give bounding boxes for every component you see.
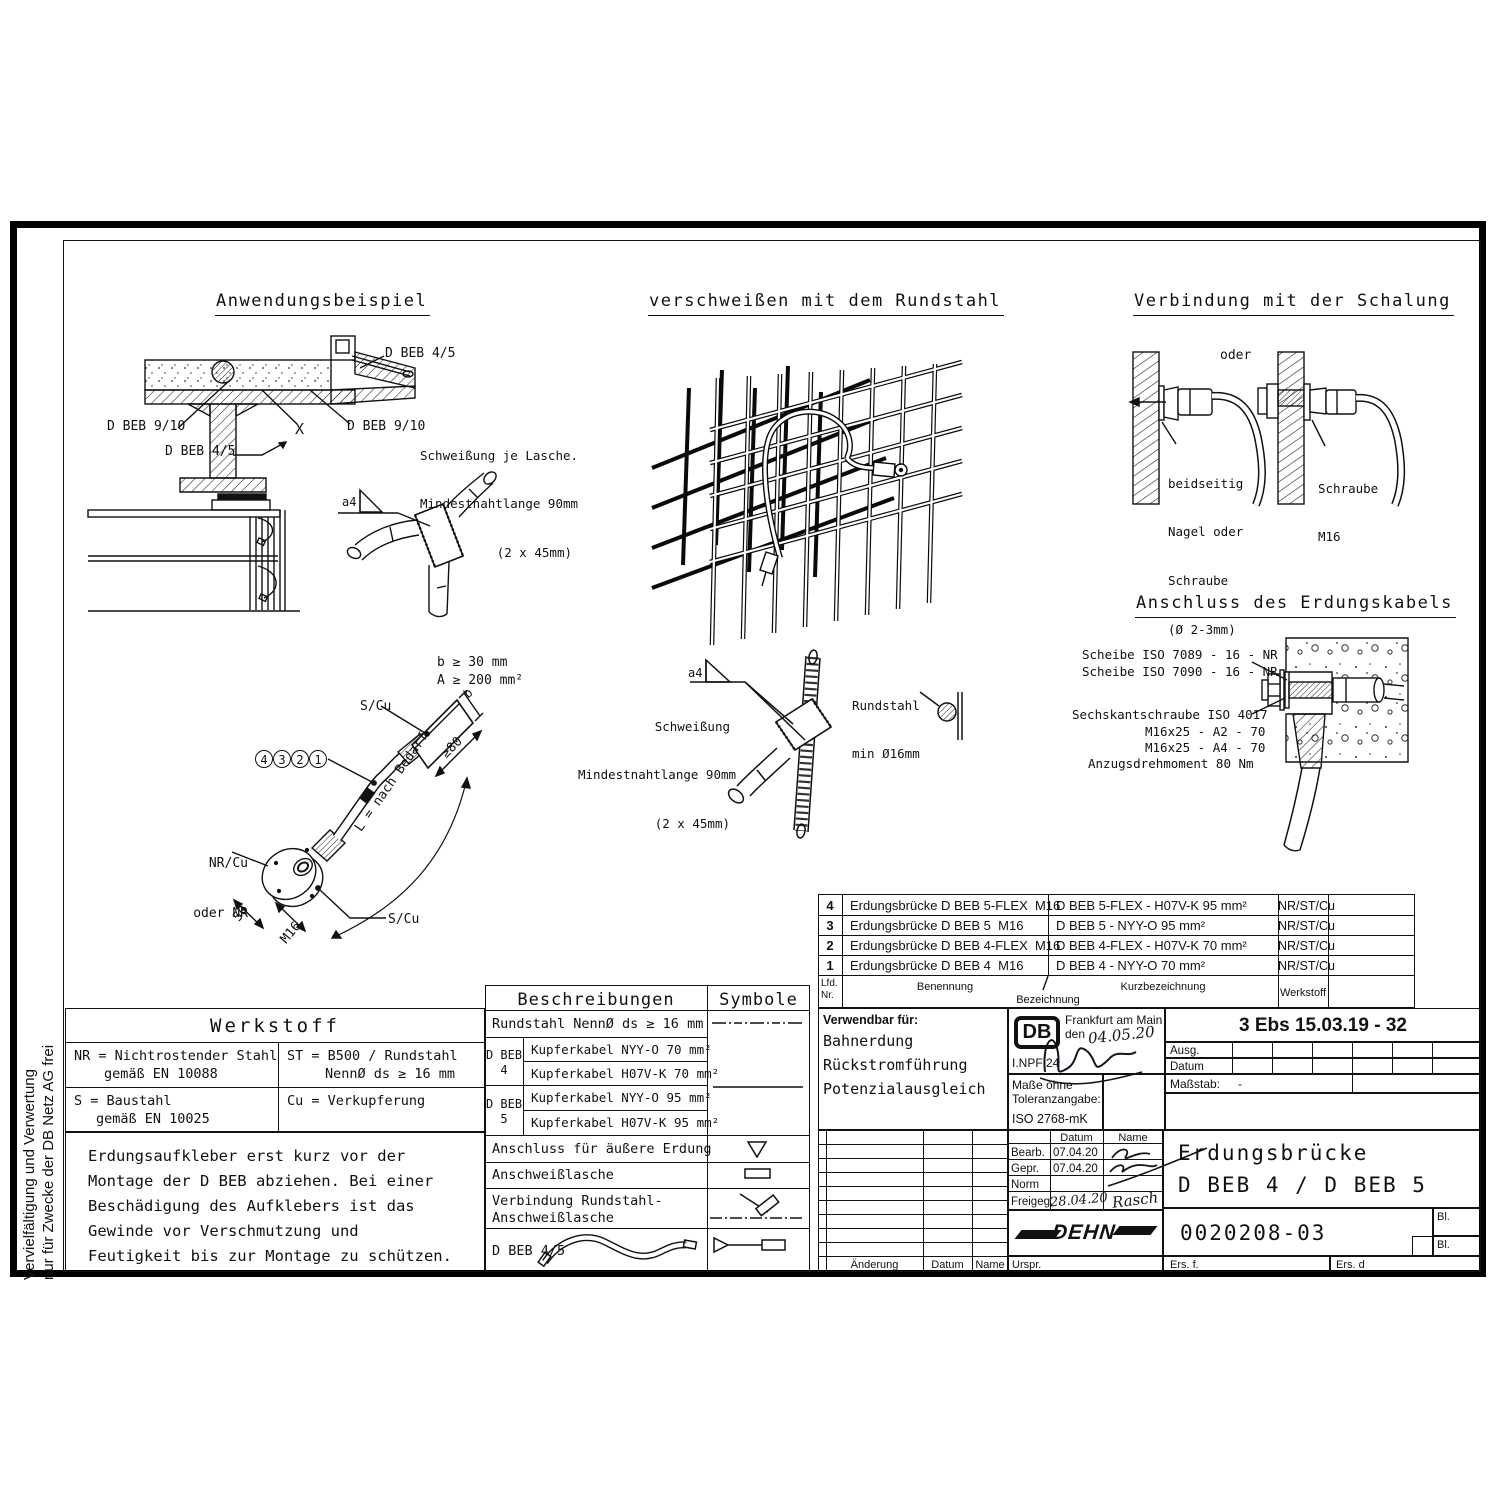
massstab-value: - [1238,1077,1242,1093]
drawing-number: 0020208-03 [1180,1220,1326,1247]
fig4-dim-a: A ≥ 200 mm² [437,673,523,690]
dehn-swoosh-right [1112,1226,1157,1235]
legend-k1: Kupferkabel NYY-O 70 mm² [531,1042,712,1058]
approvals-col-name: Name [1103,1131,1163,1145]
verwendbar-item1: Bahnerdung [823,1032,913,1052]
parts-row-benennung: Erdungsbrücke D BEB 4 M16 [850,958,1023,975]
parts-row-nr: 3 [818,918,842,935]
parts-row-kurz: D BEB 4-FLEX - H07V-K 70 mm² [1056,938,1247,955]
parts-row-nr: 1 [818,958,842,975]
verwendbar-item2: Rückstromführung [823,1056,968,1076]
legend-k3: Kupferkabel NYY-O 95 mm² [531,1090,712,1106]
parts-header-bezeichnung: Bezeichnung [968,993,1128,1007]
bl-label-1: Bl. [1437,1210,1450,1224]
freigeg-label: Freigeg. [1011,1195,1053,1210]
werkstoff-title: Werkstoff [65,1014,485,1039]
dehn-swoosh-left [1014,1230,1061,1239]
legend-g2-nr: 5 [485,1112,523,1128]
fig5-label-a4: a4 [688,666,702,682]
fig2-title: verschweißen mit dem Rundstahl [648,291,1004,316]
legend-k4: Kupferkabel H07V-K 95 mm² [531,1115,719,1131]
werkstoff-s: S = Baustahl [74,1093,172,1111]
fig1-label-dbeb910-left: D BEB 9/10 [107,419,185,436]
fig4-callout-3: 3 [273,750,291,768]
dehn-wordmark: DEHN [1051,1220,1117,1246]
fig6-label-m1: M16x25 - A2 - 70 [1145,724,1265,740]
parts-row-kurz: D BEB 5-FLEX - H07V-K 95 mm² [1056,898,1247,915]
fig4-callout-4: 4 [255,750,273,768]
fig6-label-schraube: Sechskantschraube ISO 4017 [1072,707,1268,723]
parts-row-werkstoff: NR/ST/Cu [1278,918,1328,934]
ausg-label: Ausg. [1170,1044,1199,1059]
gepr-date: 07.04.20 [1053,1162,1098,1177]
legend-symbole: Symbole [707,989,810,1011]
fig3-label-right: Schraube M16 [1318,448,1378,578]
norm-label: Norm [1011,1178,1039,1193]
empty-strip [1165,1093,1481,1130]
datum-label: Datum [1170,1060,1204,1075]
parts-row-kurz: D BEB 5 - NYY-O 95 mm² [1056,918,1205,935]
rev-aenderung: Änderung [826,1258,923,1272]
verwendbar-label: Verwendbar für: [823,1012,918,1028]
gepr-label: Gepr. [1011,1162,1039,1177]
margin-note-line2: nur für Zwecke der DB Netz AG frei [39,968,58,1280]
fig4-label-nrcu: NR/Cu oder NR [188,822,248,957]
rev-datum: Datum [923,1258,972,1272]
db-logo: DB [1014,1016,1060,1049]
legend-g1: D BEB [485,1048,523,1064]
werkstoff-st2: NennØ ds ≥ 16 mm [325,1066,455,1084]
legend-r6: D BEB 4/5 [492,1243,565,1261]
fig1-weld-note: Schweißung je Lasche. Mindestnahtlange 9… [420,415,572,594]
fig4-label-scu-top: S/Cu [360,699,391,716]
parts-row-werkstoff: NR/ST/Cu [1278,958,1328,974]
parts-row-nr: 4 [818,898,842,915]
parts-row-werkstoff: NR/ST/Cu [1278,898,1328,914]
werkstoff-cu: Cu = Verkupferung [287,1093,425,1111]
toleranz-l3: ISO 2768-mK [1012,1111,1088,1127]
bl-label-2: Bl. [1437,1238,1450,1252]
datum-row [1165,1058,1481,1074]
fig5-weld-note: Schweißung Mindestnahtlange 90mm (2 x 45… [578,686,730,865]
werkstoff-nr2: gemäß EN 10088 [104,1066,218,1084]
legend-r5b: Anschweißlasche [492,1210,614,1228]
ersd-label: Ers. d [1336,1258,1365,1272]
fig1-label-dbeb910-right: D BEB 9/10 [347,419,425,436]
toleranz-empty-box [1103,1074,1165,1130]
toleranz-l2: Toleranzangabe: [1012,1092,1101,1108]
fig6-label-m2: M16x25 - A4 - 70 [1145,740,1265,756]
legend-g1-nr: 4 [485,1063,523,1079]
fig1-label-dbeb45-lower: D BEB 4/5 [165,444,235,461]
werkstoff-note: Erdungsaufkleber erst kurz vor der Monta… [88,1144,468,1269]
parts-row-kurz: D BEB 4 - NYY-O 70 mm² [1056,958,1205,975]
legend-r1: Rundstahl NennØ ds ≥ 16 mm [492,1016,703,1034]
parts-header-kurz: Kurzbezeichnung [1048,980,1278,994]
drawing-sheet: Vervielfältigung und Verwertung nur für … [0,0,1500,1500]
drawing-title-line1: Erdungsbrücke [1178,1140,1368,1167]
bearb-label: Bearb. [1011,1146,1045,1161]
fig4-label-scu-bottom: S/Cu [388,912,419,929]
fig1-title: Anwendungsbeispiel [215,291,430,316]
ebs-number: 3 Ebs 15.03.19 - 32 [1165,1014,1481,1039]
fig3-label-left: beidseitig Nagel oder Schraube (Ø 2-3mm) [1168,443,1243,671]
parts-header-werkstoff: Werkstoff [1278,986,1328,1000]
parts-row-nr: 2 [818,938,842,955]
fig6-label-scheibe1: Scheibe ISO 7089 - 16 - NR [1082,647,1278,663]
fig1-label-x: X [295,420,304,440]
urspr-label: Urspr. [1012,1258,1041,1272]
parts-row-benennung: Erdungsbrücke D BEB 4-FLEX M16 [850,938,1060,955]
fig3-label-oder: oder [1220,348,1251,365]
legend-g2: D BEB [485,1097,523,1113]
fig1-label-dbeb45-top: D BEB 4/5 [385,346,455,363]
approvals-col-datum: Datum [1050,1131,1103,1145]
legend-title: Beschreibungen [485,989,707,1011]
fig3-title: Verbindung mit der Schalung [1133,291,1454,316]
verwendbar-item3: Potenzialausgleich [823,1080,986,1100]
margin-copyright-note: Vervielfältigung und Verwertung nur für … [20,968,58,1280]
parts-header-nr: Nr. [821,989,834,1002]
fig4-callout-2: 2 [291,750,309,768]
fig6-label-moment: Anzugsdrehmoment 80 Nm [1088,756,1254,772]
massstab-label: Maßstab: [1170,1077,1220,1093]
werkstoff-nr: NR = Nichtrostender Stahl [74,1048,277,1066]
parts-row-werkstoff: NR/ST/Cu [1278,938,1328,954]
rev-name: Name [972,1258,1008,1272]
legend-r5a: Verbindung Rundstahl- [492,1193,663,1211]
db-inpf: I.NPF 24 [1012,1056,1059,1072]
legend-r4: Anschweißlasche [492,1167,614,1185]
fig4-dim-b: b ≥ 30 mm [437,655,507,672]
fig5-label-rundstahl: Rundstahl min Ø16mm [852,665,920,795]
legend-k2: Kupferkabel H07V-K 70 mm² [531,1066,719,1082]
parts-row-benennung: Erdungsbrücke D BEB 5 M16 [850,918,1023,935]
fig4-callout-1: 1 [309,750,327,768]
fig6-label-scheibe2: Scheibe ISO 7090 - 16 - NR [1082,664,1278,680]
ersf-label: Ers. f. [1170,1258,1199,1272]
fig1-label-a4: a4 [342,495,356,511]
legend-r3: Anschluss für äußere Erdung [492,1141,711,1159]
drawing-title-line2: D BEB 4 / D BEB 5 [1178,1172,1427,1199]
margin-note-line1: Vervielfältigung und Verwertung [20,968,39,1280]
parts-row-benennung: Erdungsbrücke D BEB 5-FLEX M16 [850,898,1060,915]
werkstoff-st: ST = B500 / Rundstahl [287,1048,458,1066]
bearb-date: 07.04.20 [1053,1146,1098,1161]
db-den: den [1065,1027,1085,1043]
ausg-row [1165,1042,1481,1058]
werkstoff-s2: gemäß EN 10025 [96,1111,210,1129]
dehn-logo: DEHN [1018,1216,1153,1250]
